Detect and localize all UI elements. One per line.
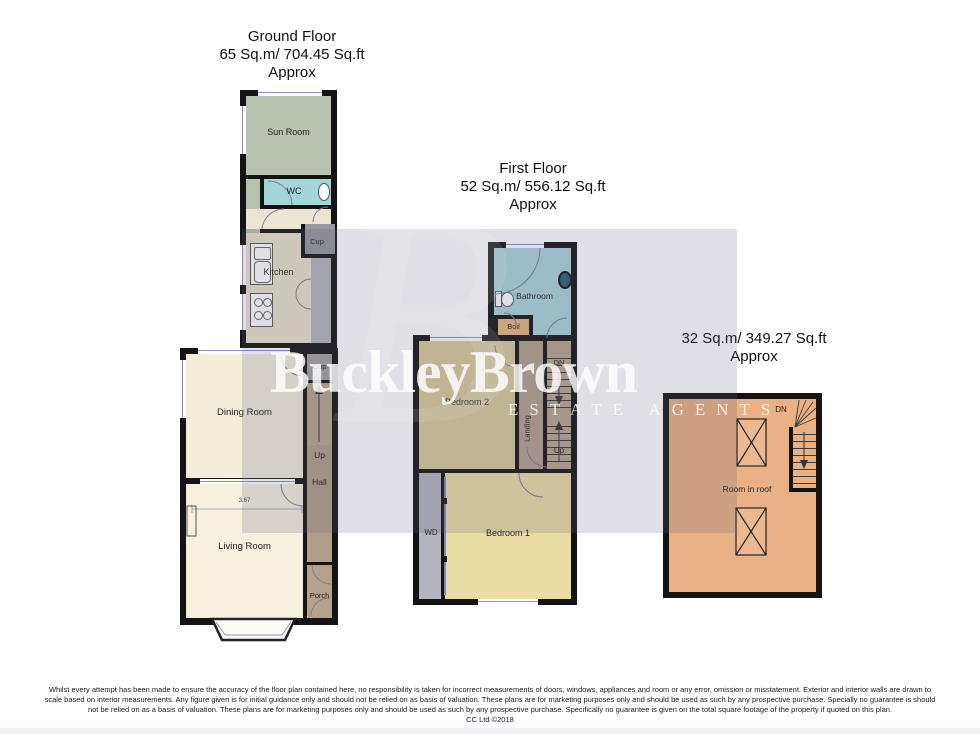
skylight-icon bbox=[737, 419, 766, 466]
wc-label: WC bbox=[264, 186, 324, 196]
bay-window bbox=[212, 619, 295, 640]
sun-room-label: Sun Room bbox=[246, 127, 331, 137]
bottom-strip bbox=[0, 728, 980, 734]
watermark-monogram: B bbox=[330, 170, 513, 470]
watermark-tagline: ESTATE AGENTS bbox=[508, 400, 781, 420]
roof-stairs-dn-arrow bbox=[800, 432, 808, 469]
skylight-icon bbox=[736, 508, 766, 555]
disclaimer-line-2: scale based on interior measurements. An… bbox=[0, 695, 980, 705]
disclaimer-line-1: Whilst every attempt has been made to en… bbox=[0, 685, 980, 695]
watermark-brand: BuckleyBrown bbox=[270, 338, 720, 407]
fireplace-icon bbox=[187, 506, 196, 536]
disclaimer-credit: CC Ltd ©2018 bbox=[0, 715, 980, 725]
porch-label: Porch bbox=[305, 591, 334, 600]
living-room-label: Living Room bbox=[186, 541, 303, 552]
disclaimer-line-3: not be relied on as a basis of valuation… bbox=[0, 705, 980, 715]
roof-winder-treads bbox=[795, 400, 816, 427]
floorplan-canvas: Ground Floor 65 Sq.m/ 704.45 Sq.ft Appro… bbox=[0, 0, 980, 734]
